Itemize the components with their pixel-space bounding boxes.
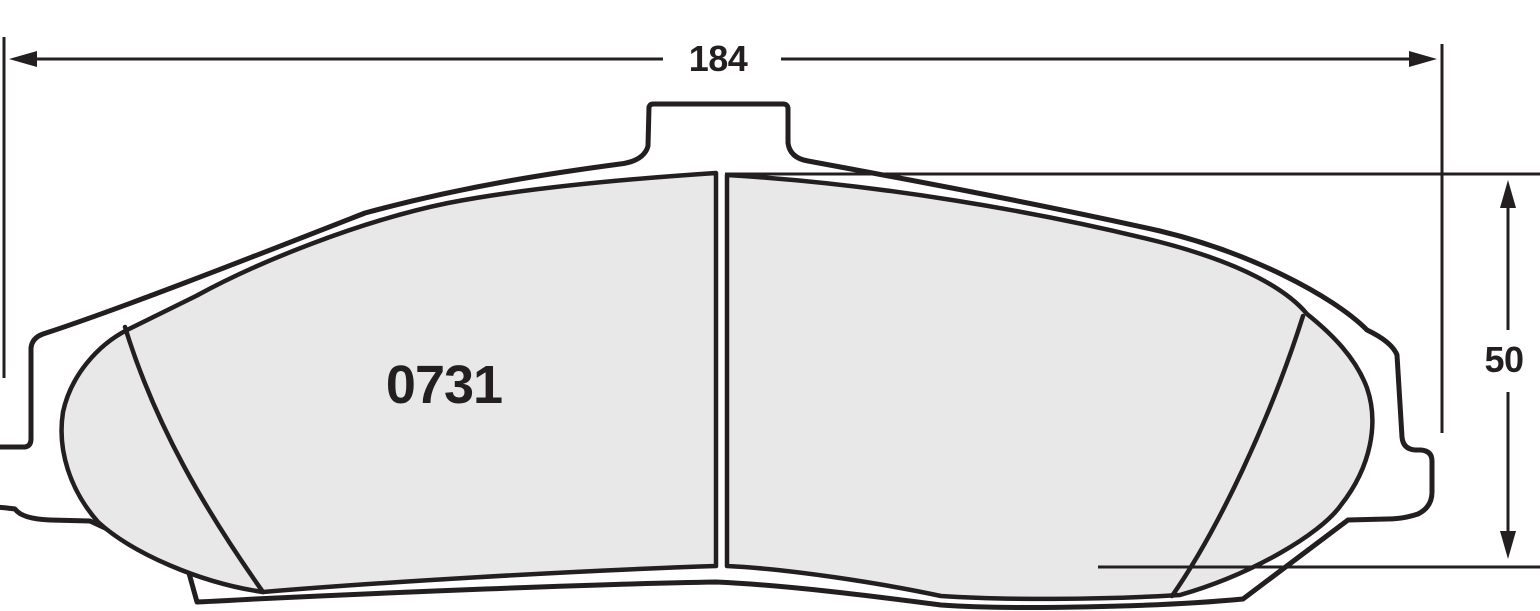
friction-pad-right	[727, 175, 1372, 599]
width-arrowhead-right	[1409, 51, 1437, 67]
part-number-label: 0731	[386, 355, 502, 415]
brake-pad-diagram: 184 50 0731	[0, 0, 1540, 611]
height-arrowhead-down	[1500, 531, 1516, 559]
technical-drawing-canvas: 184 50 0731	[0, 0, 1540, 611]
width-arrowhead-left	[9, 51, 37, 67]
height-arrowhead-up	[1500, 180, 1516, 208]
width-dimension-label: 184	[689, 38, 748, 79]
height-dimension-label: 50	[1484, 339, 1523, 380]
